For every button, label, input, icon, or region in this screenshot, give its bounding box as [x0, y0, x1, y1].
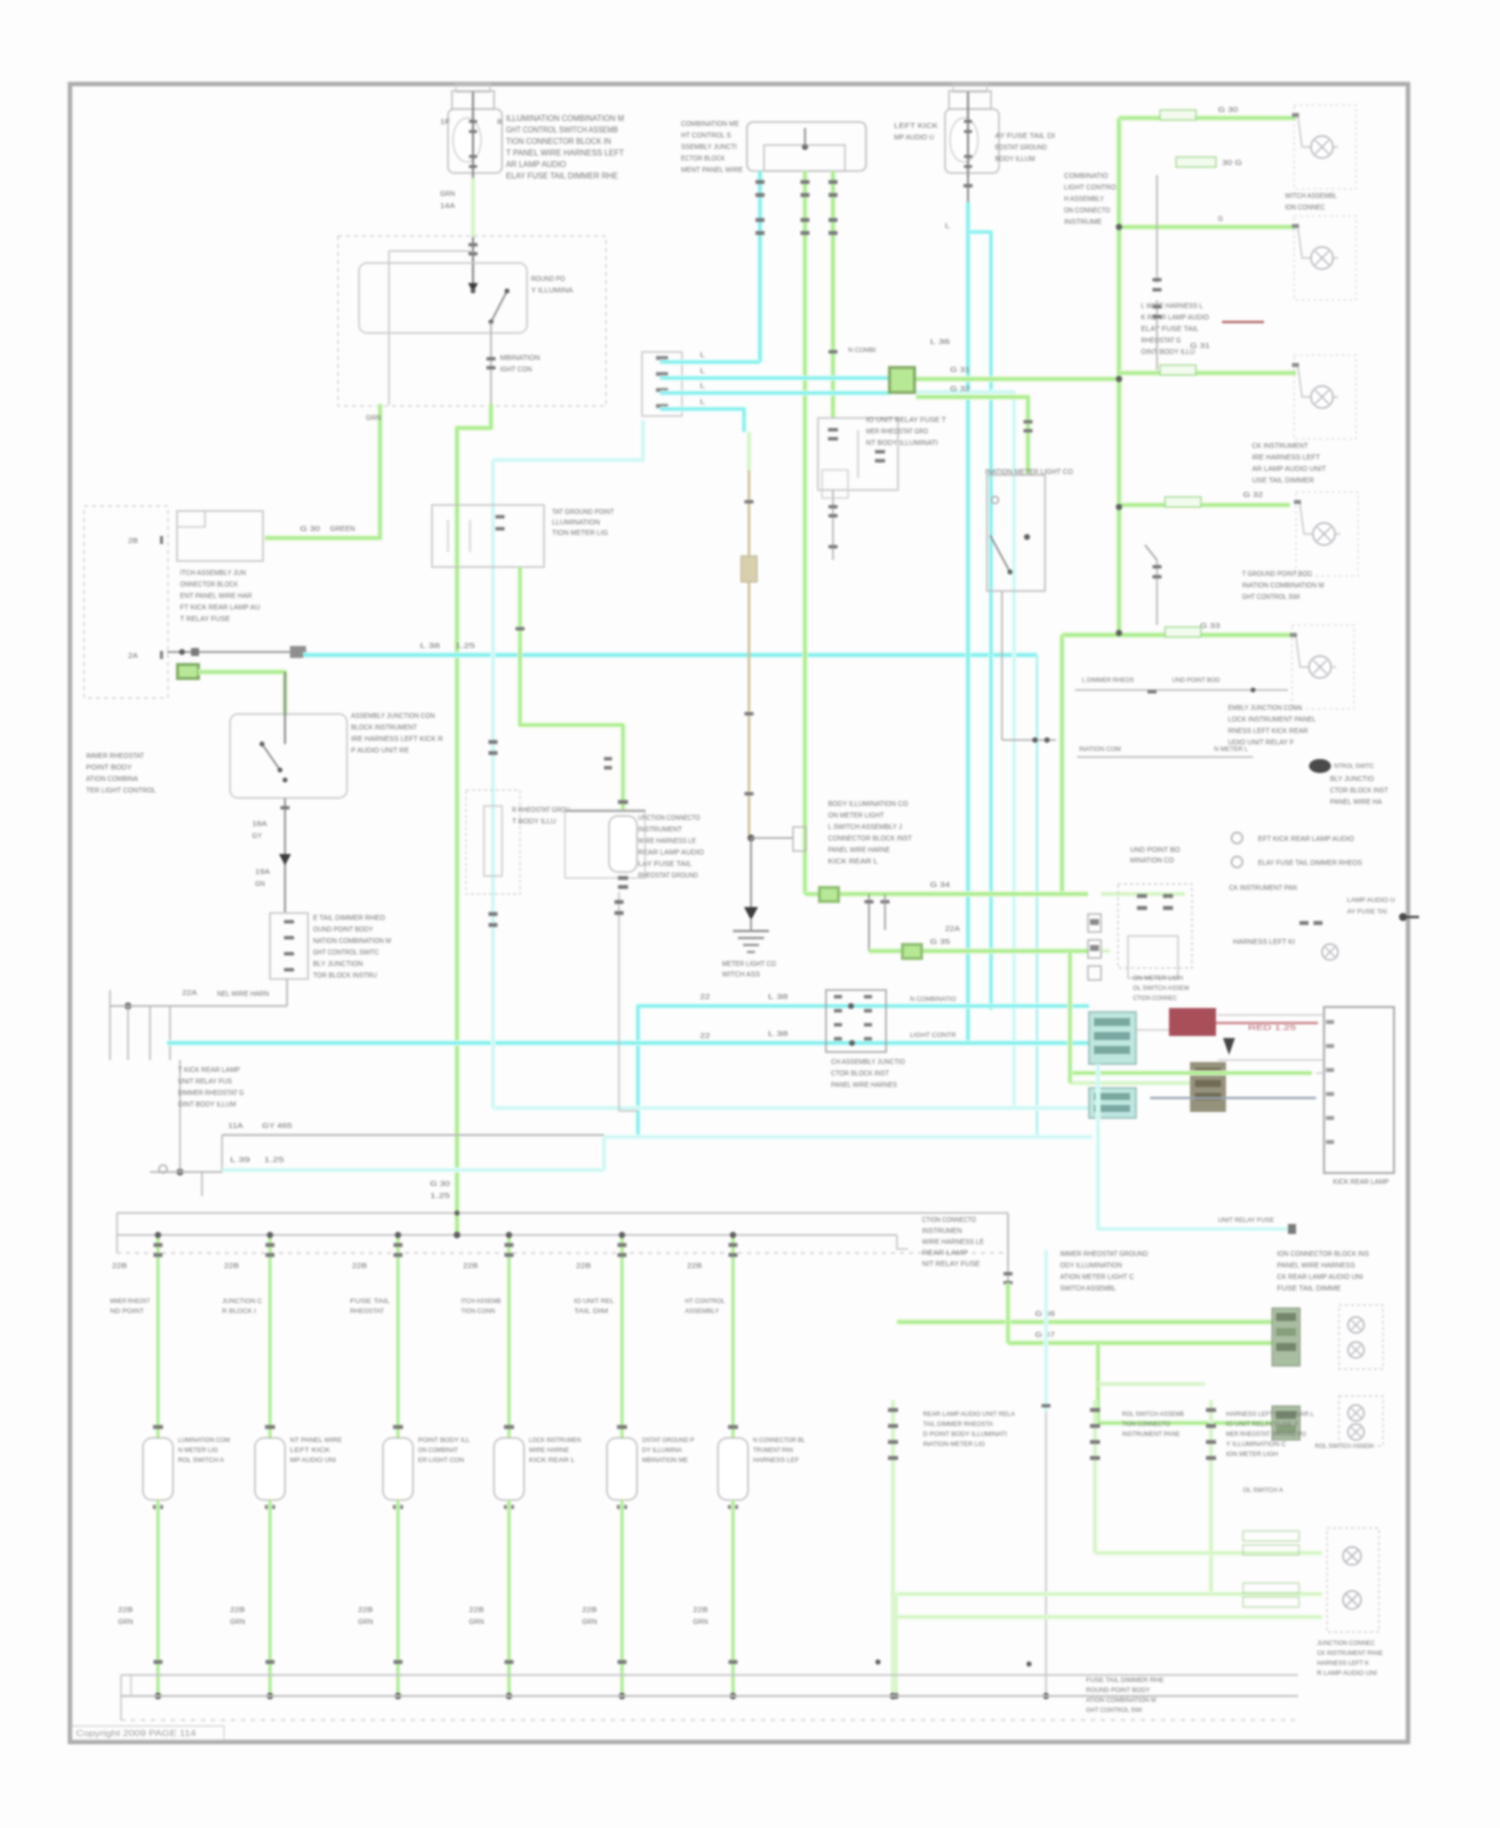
- svg-text:GRN: GRN: [118, 1619, 133, 1626]
- svg-text:LOCK INSTRUMENT PANEL: LOCK INSTRUMENT PANEL: [1228, 717, 1316, 724]
- svg-text:HT CONTROL: HT CONTROL: [685, 1298, 725, 1305]
- svg-text:11A: 11A: [228, 1123, 243, 1130]
- svg-text:GRN: GRN: [693, 1619, 708, 1626]
- svg-text:ON CONNECTO: ON CONNECTO: [1064, 208, 1110, 215]
- svg-text:NTROL SWITC: NTROL SWITC: [1334, 763, 1374, 770]
- svg-text:GN: GN: [255, 881, 265, 888]
- svg-text:FT KICK REAR LAMP AU: FT KICK REAR LAMP AU: [180, 605, 260, 612]
- svg-text:INATION COMBINATION M: INATION COMBINATION M: [1242, 583, 1324, 590]
- svg-text:BLOCK INSTRUMENT: BLOCK INSTRUMENT: [351, 725, 418, 732]
- svg-text:ROL SWITCH ASSEMB: ROL SWITCH ASSEMB: [1122, 1411, 1184, 1418]
- svg-text:BODY ILLUM: BODY ILLUM: [995, 156, 1035, 163]
- svg-text:E TAIL DIMMER RHEO: E TAIL DIMMER RHEO: [313, 915, 386, 922]
- svg-text:22B: 22B: [693, 1607, 708, 1614]
- svg-text:CTOR BLOCK INST: CTOR BLOCK INST: [1330, 788, 1389, 795]
- svg-text:NEL WIRE HARN: NEL WIRE HARN: [217, 991, 269, 998]
- svg-text:GHT CONTROL SWI: GHT CONTROL SWI: [1242, 594, 1300, 601]
- svg-text:GRN: GRN: [230, 1619, 245, 1626]
- svg-text:N COMBINATIO: N COMBINATIO: [910, 996, 956, 1003]
- svg-text:G: G: [1218, 216, 1223, 223]
- svg-text:GHT CONTROL SWITCH ASSEMB: GHT CONTROL SWITCH ASSEMB: [506, 126, 618, 135]
- svg-text:NATION COMBINATION M: NATION COMBINATION M: [313, 938, 391, 945]
- svg-text:L: L: [700, 399, 705, 406]
- svg-text:UNCTION CONNECTO: UNCTION CONNECTO: [638, 815, 700, 822]
- svg-text:D POINT BODY ILLUMINATI: D POINT BODY ILLUMINATI: [923, 1431, 1007, 1438]
- svg-text:WITCH ASS: WITCH ASS: [722, 972, 760, 979]
- svg-text:G 33: G 33: [1200, 623, 1220, 630]
- svg-text:HARNESS LEFT K: HARNESS LEFT K: [1317, 1660, 1370, 1667]
- svg-text:DY ILLUMINA: DY ILLUMINA: [642, 1447, 683, 1454]
- svg-text:G 32: G 32: [950, 386, 970, 393]
- svg-text:L 38: L 38: [768, 994, 788, 1001]
- svg-text:22B: 22B: [463, 1263, 478, 1270]
- svg-text:ELAY FUSE TAIL: ELAY FUSE TAIL: [1141, 326, 1199, 333]
- svg-text:WIRE HARNE: WIRE HARNE: [529, 1447, 570, 1454]
- svg-text:CK REAR LAMP AUDIO UNI: CK REAR LAMP AUDIO UNI: [1277, 1274, 1363, 1281]
- svg-text:GY 465: GY 465: [262, 1123, 292, 1130]
- svg-text:G 31: G 31: [1190, 343, 1210, 350]
- svg-text:2A: 2A: [128, 653, 138, 660]
- svg-text:MER RHEOSTAT GRO: MER RHEOSTAT GRO: [866, 429, 928, 436]
- svg-text:HARNESS LEFT KICK REAR L: HARNESS LEFT KICK REAR L: [1226, 1411, 1314, 1418]
- svg-text:MP AUDIO U: MP AUDIO U: [894, 135, 934, 142]
- svg-text:R BLOCK I: R BLOCK I: [222, 1308, 256, 1315]
- svg-text:L: L: [700, 352, 705, 359]
- svg-text:22A: 22A: [182, 990, 197, 997]
- svg-text:ONNECTOR BLOCK: ONNECTOR BLOCK: [180, 582, 238, 589]
- svg-text:ON METER LIGH: ON METER LIGH: [1133, 975, 1183, 982]
- svg-text:PANEL WIRE HARNE: PANEL WIRE HARNE: [828, 847, 890, 854]
- svg-text:NT PANEL WIRE: NT PANEL WIRE: [290, 1437, 343, 1444]
- svg-text:GRN: GRN: [358, 1619, 373, 1626]
- svg-text:ION METER LIGH: ION METER LIGH: [1226, 1451, 1278, 1458]
- svg-text:PANEL WIRE HARNES: PANEL WIRE HARNES: [831, 1082, 897, 1089]
- svg-text:1.25: 1.25: [455, 643, 475, 650]
- svg-text:G 31: G 31: [950, 367, 970, 374]
- svg-text:MP AUDIO UNI: MP AUDIO UNI: [290, 1457, 336, 1464]
- svg-text:LIGHT CONTR: LIGHT CONTR: [910, 1032, 956, 1039]
- svg-text:AY FUSE TAIL DI: AY FUSE TAIL DI: [995, 133, 1055, 140]
- svg-text:FUSE TAIL DIMME: FUSE TAIL DIMME: [1277, 1286, 1341, 1293]
- svg-text:ILLUMINATION COMBINATION M: ILLUMINATION COMBINATION M: [506, 114, 624, 123]
- svg-text:MENT PANEL WIRE: MENT PANEL WIRE: [681, 167, 743, 174]
- svg-text:GRN: GRN: [469, 1619, 484, 1626]
- svg-text:ELAY FUSE TAIL DIMMER RHEOS: ELAY FUSE TAIL DIMMER RHEOS: [1258, 860, 1362, 867]
- svg-text:SSEMBLY JUNCTI: SSEMBLY JUNCTI: [681, 144, 737, 151]
- svg-text:EOSTAT GROUND: EOSTAT GROUND: [995, 145, 1047, 152]
- svg-text:IMMER RHEOSTAT: IMMER RHEOSTAT: [86, 753, 145, 760]
- svg-text:L SWITCH ASSEMBLY J: L SWITCH ASSEMBLY J: [828, 824, 902, 831]
- svg-text:RHEOSTAT GROUND: RHEOSTAT GROUND: [638, 873, 698, 880]
- svg-text:22B: 22B: [112, 1263, 127, 1270]
- svg-text:T PANEL WIRE HARNESS LEFT: T PANEL WIRE HARNESS LEFT: [506, 149, 624, 158]
- svg-text:GHT CONTROL SWITC: GHT CONTROL SWITC: [313, 950, 379, 957]
- svg-text:N CONNECTOR BL: N CONNECTOR BL: [753, 1437, 805, 1444]
- svg-text:GREEN: GREEN: [330, 526, 355, 533]
- svg-text:18A: 18A: [252, 821, 267, 828]
- svg-text:L 38: L 38: [768, 1031, 788, 1038]
- svg-text:METER LIGHT CO: METER LIGHT CO: [722, 961, 776, 968]
- svg-text:HARNESS LEFT KI: HARNESS LEFT KI: [1233, 939, 1295, 946]
- svg-text:IMMER RHEOSTAT GROUND: IMMER RHEOSTAT GROUND: [1060, 1251, 1148, 1258]
- svg-text:L 36: L 36: [930, 339, 950, 346]
- svg-text:USE TAIL DIMMER: USE TAIL DIMMER: [1252, 478, 1314, 485]
- svg-text:LEFT KICK: LEFT KICK: [290, 1447, 331, 1454]
- svg-text:INSTRUMEN: INSTRUMEN: [922, 1228, 962, 1235]
- svg-text:IO UNIT REL: IO UNIT REL: [574, 1298, 614, 1305]
- svg-text:TION CONNECTOR BLOCK IN: TION CONNECTOR BLOCK IN: [506, 137, 611, 146]
- svg-text:R RHEOSTAT GROU: R RHEOSTAT GROU: [512, 807, 570, 814]
- svg-text:LLUMINATION: LLUMINATION: [552, 520, 600, 527]
- svg-text:NT BODY ILLUMINATI: NT BODY ILLUMINATI: [866, 440, 938, 447]
- svg-text:L DIMMER RHEOS: L DIMMER RHEOS: [1082, 677, 1135, 684]
- svg-text:22A: 22A: [945, 926, 960, 933]
- svg-text:TION CONN: TION CONN: [461, 1308, 495, 1315]
- svg-text:RNESS LEFT KICK REAR: RNESS LEFT KICK REAR: [1228, 728, 1308, 735]
- svg-text:POINT BODY ILL: POINT BODY ILL: [418, 1437, 470, 1444]
- svg-text:UNIT RELAY FUSE: UNIT RELAY FUSE: [1218, 1217, 1275, 1224]
- svg-text:ELAY FUSE TAIL DIMMER RHE: ELAY FUSE TAIL DIMMER RHE: [506, 172, 618, 181]
- svg-text:CTION CONNECTO: CTION CONNECTO: [922, 1217, 976, 1224]
- svg-text:ATION METER LIGHT C: ATION METER LIGHT C: [1060, 1274, 1134, 1281]
- svg-text:CK INSTRUMENT: CK INSTRUMENT: [1252, 443, 1309, 450]
- svg-text:22: 22: [700, 1033, 710, 1040]
- svg-text:INATION METER LIGHT CO: INATION METER LIGHT CO: [985, 469, 1074, 476]
- svg-text:L: L: [700, 383, 705, 390]
- svg-text:LAY FUSE TAIL: LAY FUSE TAIL: [638, 861, 692, 868]
- svg-text:T GROUND POINT BOD: T GROUND POINT BOD: [1242, 571, 1312, 578]
- svg-text:WIRE HARNESS LE: WIRE HARNESS LE: [638, 838, 696, 845]
- svg-text:T RELAY FUSE: T RELAY FUSE: [180, 616, 230, 623]
- svg-text:2B: 2B: [128, 538, 138, 545]
- svg-text:H ASSEMBLY: H ASSEMBLY: [1064, 196, 1104, 203]
- svg-text:MBINATION: MBINATION: [500, 355, 540, 362]
- svg-text:1.25: 1.25: [430, 1193, 450, 1200]
- svg-text:OUND POINT BODY: OUND POINT BODY: [313, 927, 373, 934]
- svg-text:TRUMENT PAN: TRUMENT PAN: [753, 1447, 793, 1454]
- svg-text:HARNESS LEF: HARNESS LEF: [753, 1457, 799, 1464]
- svg-text:CTOR BLOCK INST: CTOR BLOCK INST: [831, 1071, 890, 1078]
- svg-text:G 30: G 30: [1218, 107, 1238, 114]
- svg-text:ION CONNEC: ION CONNEC: [1285, 205, 1325, 212]
- svg-text:CH ASSEMBLY JUNCTIO: CH ASSEMBLY JUNCTIO: [831, 1059, 905, 1066]
- svg-text:ION CONNECTOR BLOCK INS: ION CONNECTOR BLOCK INS: [1277, 1251, 1369, 1258]
- svg-text:IO UNIT RELAY FUSE T: IO UNIT RELAY FUSE T: [866, 417, 947, 424]
- svg-text:AR LAMP AUDIO UNIT: AR LAMP AUDIO UNIT: [1252, 466, 1327, 473]
- svg-text:LEFT KICK: LEFT KICK: [894, 123, 938, 130]
- svg-text:CK INSTRUMENT PANE: CK INSTRUMENT PANE: [1317, 1650, 1384, 1657]
- svg-text:OSTAT GROUND P: OSTAT GROUND P: [642, 1437, 694, 1444]
- svg-text:22B: 22B: [576, 1263, 591, 1270]
- svg-text:NIT RELAY FUSE: NIT RELAY FUSE: [922, 1261, 980, 1268]
- svg-text:DIMMER RHEOSTAT G: DIMMER RHEOSTAT G: [178, 1090, 244, 1097]
- svg-text:22B: 22B: [118, 1607, 133, 1614]
- svg-text:BLY JUNCTION: BLY JUNCTION: [313, 961, 363, 968]
- svg-text:Y ILLUMINATION C: Y ILLUMINATION C: [1226, 1441, 1286, 1448]
- svg-text:EMBLY JUNCTION CONN: EMBLY JUNCTION CONN: [1228, 705, 1302, 712]
- svg-text:N METER L: N METER L: [1214, 746, 1248, 753]
- svg-text:IO UNIT RELAY FUSE T: IO UNIT RELAY FUSE T: [1226, 1421, 1298, 1428]
- svg-text:LUMINATION COM: LUMINATION COM: [178, 1437, 230, 1444]
- svg-text:HT CONTROL S: HT CONTROL S: [681, 133, 731, 140]
- svg-text:22B: 22B: [582, 1607, 597, 1614]
- svg-text:K REAR LAMP AUDIO: K REAR LAMP AUDIO: [1141, 315, 1210, 322]
- svg-text:JUNCTION C: JUNCTION C: [222, 1298, 262, 1305]
- svg-text:OINT BODY ILLU: OINT BODY ILLU: [1141, 349, 1195, 356]
- svg-text:22: 22: [700, 994, 710, 1001]
- svg-text:RHEOSTAT G: RHEOSTAT G: [1141, 338, 1181, 345]
- svg-text:Copyright 2009 PAGE 114: Copyright 2009 PAGE 114: [76, 1729, 197, 1738]
- svg-text:FUSE TAIL: FUSE TAIL: [350, 1298, 390, 1305]
- svg-text:INSTRUMENT PANE: INSTRUMENT PANE: [1122, 1431, 1181, 1438]
- svg-text:ON COMBINAT: ON COMBINAT: [418, 1447, 458, 1454]
- svg-text:COMBINATION ME: COMBINATION ME: [681, 121, 739, 128]
- svg-text:22B: 22B: [230, 1607, 245, 1614]
- svg-text:OL SWITCH A: OL SWITCH A: [1243, 1487, 1284, 1494]
- svg-text:30 G: 30 G: [1222, 160, 1242, 167]
- svg-text:ROUND POINT BODY: ROUND POINT BODY: [1086, 1687, 1151, 1694]
- svg-text:L: L: [945, 223, 950, 230]
- svg-text:CK INSTRUMENT PAN: CK INSTRUMENT PAN: [1229, 885, 1297, 892]
- svg-text:ATION COMBINATION M: ATION COMBINATION M: [1086, 1697, 1156, 1704]
- svg-text:ODY ILLUMINATION: ODY ILLUMINATION: [1060, 1263, 1122, 1270]
- svg-text:ON METER LIGHT: ON METER LIGHT: [828, 813, 885, 820]
- svg-text:19A: 19A: [255, 869, 270, 876]
- svg-text:TION CONNECTO: TION CONNECTO: [1122, 1421, 1170, 1428]
- svg-text:8: 8: [497, 119, 502, 126]
- svg-text:REAR LAMP AUDIO UNIT RELA: REAR LAMP AUDIO UNIT RELA: [923, 1411, 1016, 1418]
- svg-text:L: L: [700, 368, 705, 375]
- svg-text:TAT GROUND POINT: TAT GROUND POINT: [552, 509, 615, 516]
- svg-text:GY: GY: [252, 833, 262, 840]
- svg-text:BLY JUNCTIO: BLY JUNCTIO: [1330, 776, 1375, 783]
- svg-text:ER LIGHT CON: ER LIGHT CON: [418, 1457, 464, 1464]
- svg-text:BODY ILLUMINATION CO: BODY ILLUMINATION CO: [828, 801, 909, 808]
- svg-text:LIGHT CONTRO: LIGHT CONTRO: [1064, 185, 1117, 192]
- svg-text:PANEL WIRE HARNESS: PANEL WIRE HARNESS: [1277, 1263, 1355, 1270]
- svg-text:TAIL DIMMER RHEOSTA: TAIL DIMMER RHEOSTA: [923, 1421, 994, 1428]
- svg-text:1.25: 1.25: [264, 1157, 284, 1164]
- svg-text:22B: 22B: [224, 1263, 239, 1270]
- svg-text:ATION COMBINA: ATION COMBINA: [86, 776, 138, 783]
- svg-text:N METER LIG: N METER LIG: [178, 1447, 218, 1454]
- svg-text:GHT CONTROL SWI: GHT CONTROL SWI: [1086, 1707, 1142, 1714]
- svg-text:L 39: L 39: [230, 1157, 250, 1164]
- svg-text:TOR BLOCK INSTRU: TOR BLOCK INSTRU: [313, 973, 377, 980]
- svg-text:JUNCTION CONNEC: JUNCTION CONNEC: [1317, 1640, 1375, 1647]
- svg-text:22B: 22B: [358, 1607, 373, 1614]
- svg-text:MMER RHEOST: MMER RHEOST: [110, 1298, 150, 1305]
- svg-text:LAMP AUDIO U: LAMP AUDIO U: [1347, 897, 1395, 904]
- svg-text:ENT PANEL WIRE HAR: ENT PANEL WIRE HAR: [180, 593, 252, 600]
- svg-text:INATION COM: INATION COM: [1079, 746, 1121, 753]
- svg-text:L WIRE HARNESS L: L WIRE HARNESS L: [1141, 303, 1203, 310]
- svg-text:CONNECTOR BLOCK INST: CONNECTOR BLOCK INST: [828, 836, 913, 843]
- svg-text:G 32: G 32: [1243, 492, 1263, 499]
- svg-text:PANEL WIRE HA: PANEL WIRE HA: [1330, 799, 1382, 806]
- svg-text:ITCH ASSEMB: ITCH ASSEMB: [461, 1298, 501, 1305]
- svg-text:G 35: G 35: [930, 939, 950, 946]
- svg-text:L 38: L 38: [420, 643, 440, 650]
- svg-text:ROUND PO: ROUND PO: [531, 276, 565, 283]
- svg-text:ND POINT: ND POINT: [110, 1308, 144, 1315]
- svg-text:KICK REAR L: KICK REAR L: [529, 1457, 575, 1464]
- svg-text:AY FUSE TAI: AY FUSE TAI: [1347, 909, 1387, 916]
- svg-text:IGHT CON: IGHT CON: [500, 367, 532, 374]
- svg-text:ROL SWITCH A: ROL SWITCH A: [178, 1457, 225, 1464]
- svg-text:UNIT RELAY FUS: UNIT RELAY FUS: [178, 1079, 232, 1086]
- svg-text:RHEOSTAT: RHEOSTAT: [350, 1308, 384, 1315]
- svg-text:22B: 22B: [469, 1607, 484, 1614]
- svg-text:TER LIGHT CONTROL: TER LIGHT CONTROL: [86, 788, 156, 795]
- svg-text:EFT KICK REAR LAMP AUDIO: EFT KICK REAR LAMP AUDIO: [1258, 836, 1355, 843]
- svg-text:FUSE TAIL DIMMER RHE: FUSE TAIL DIMMER RHE: [1086, 1677, 1165, 1684]
- svg-text:22B: 22B: [352, 1263, 367, 1270]
- svg-text:WIRE HARNESS LE: WIRE HARNESS LE: [922, 1239, 984, 1246]
- svg-text:G 34: G 34: [930, 882, 950, 889]
- svg-text:G 30: G 30: [300, 526, 320, 533]
- svg-text:INATION METER LIG: INATION METER LIG: [923, 1441, 985, 1448]
- svg-text:IRE HARNESS LEFT KICK R: IRE HARNESS LEFT KICK R: [351, 736, 443, 743]
- svg-text:UND POINT BO: UND POINT BO: [1130, 847, 1181, 854]
- svg-text:AR LAMP AUDIO: AR LAMP AUDIO: [506, 160, 566, 169]
- svg-text:22B: 22B: [687, 1263, 702, 1270]
- svg-text:P AUDIO UNIT RE: P AUDIO UNIT RE: [351, 748, 409, 755]
- svg-text:ASSEMBLY: ASSEMBLY: [685, 1308, 720, 1315]
- svg-text:REAR LAMP: REAR LAMP: [922, 1250, 968, 1257]
- svg-text:ITCH ASSEMBLY JUN: ITCH ASSEMBLY JUN: [180, 570, 246, 577]
- svg-text:T KICK REAR LAMP: T KICK REAR LAMP: [178, 1067, 240, 1074]
- svg-text:1F: 1F: [440, 119, 450, 126]
- svg-text:MINATION CO: MINATION CO: [1130, 858, 1175, 865]
- svg-text:GRN: GRN: [440, 191, 455, 198]
- svg-text:G 30: G 30: [430, 1181, 450, 1188]
- svg-text:GRN: GRN: [582, 1619, 597, 1626]
- svg-text:RED 1.25: RED 1.25: [1248, 1025, 1296, 1032]
- svg-text:T BODY ILLU: T BODY ILLU: [512, 819, 556, 826]
- svg-text:CTION CONNEC: CTION CONNEC: [1133, 995, 1177, 1002]
- svg-text:ASSEMBLY JUNCTION CON: ASSEMBLY JUNCTION CON: [351, 713, 435, 720]
- svg-text:WITCH ASSEMBL: WITCH ASSEMBL: [1285, 193, 1337, 200]
- svg-text:UND POINT BOD: UND POINT BOD: [1172, 677, 1220, 684]
- svg-text:TAIL DIM: TAIL DIM: [574, 1308, 608, 1315]
- svg-text:GRN: GRN: [366, 415, 381, 422]
- svg-text:KICK REAR LAMP: KICK REAR LAMP: [1333, 1179, 1389, 1186]
- svg-text:TION METER LIG: TION METER LIG: [552, 530, 608, 537]
- svg-text:REAR LAMP AUDIO: REAR LAMP AUDIO: [638, 850, 705, 857]
- svg-text:14A: 14A: [440, 203, 455, 210]
- svg-text:IRE HARNESS LEFT: IRE HARNESS LEFT: [1252, 455, 1321, 462]
- svg-text:INSTRUME: INSTRUME: [1064, 219, 1102, 226]
- svg-text:R LAMP AUDIO UNI: R LAMP AUDIO UNI: [1317, 1670, 1377, 1677]
- svg-text:ECTOR BLOCK: ECTOR BLOCK: [681, 156, 725, 163]
- svg-text:SWITCH ASSEMBL: SWITCH ASSEMBL: [1060, 1286, 1116, 1293]
- svg-text:POINT BODY: POINT BODY: [86, 765, 132, 772]
- svg-text:Y ILLUMINA: Y ILLUMINA: [531, 288, 573, 295]
- svg-text:MER RHEOSTAT GROUND PO: MER RHEOSTAT GROUND PO: [1226, 1431, 1306, 1438]
- svg-text:KICK REAR L: KICK REAR L: [828, 859, 878, 866]
- svg-text:COMBINATIO: COMBINATIO: [1064, 173, 1109, 180]
- svg-text:N COMBI: N COMBI: [848, 347, 876, 354]
- svg-text:MBINATION ME: MBINATION ME: [642, 1457, 689, 1464]
- svg-text:LOCK INSTRUMEN: LOCK INSTRUMEN: [529, 1437, 581, 1444]
- svg-text:OL SWITCH ASSEM: OL SWITCH ASSEM: [1133, 985, 1189, 992]
- svg-text:OINT BODY ILLUM: OINT BODY ILLUM: [178, 1102, 236, 1109]
